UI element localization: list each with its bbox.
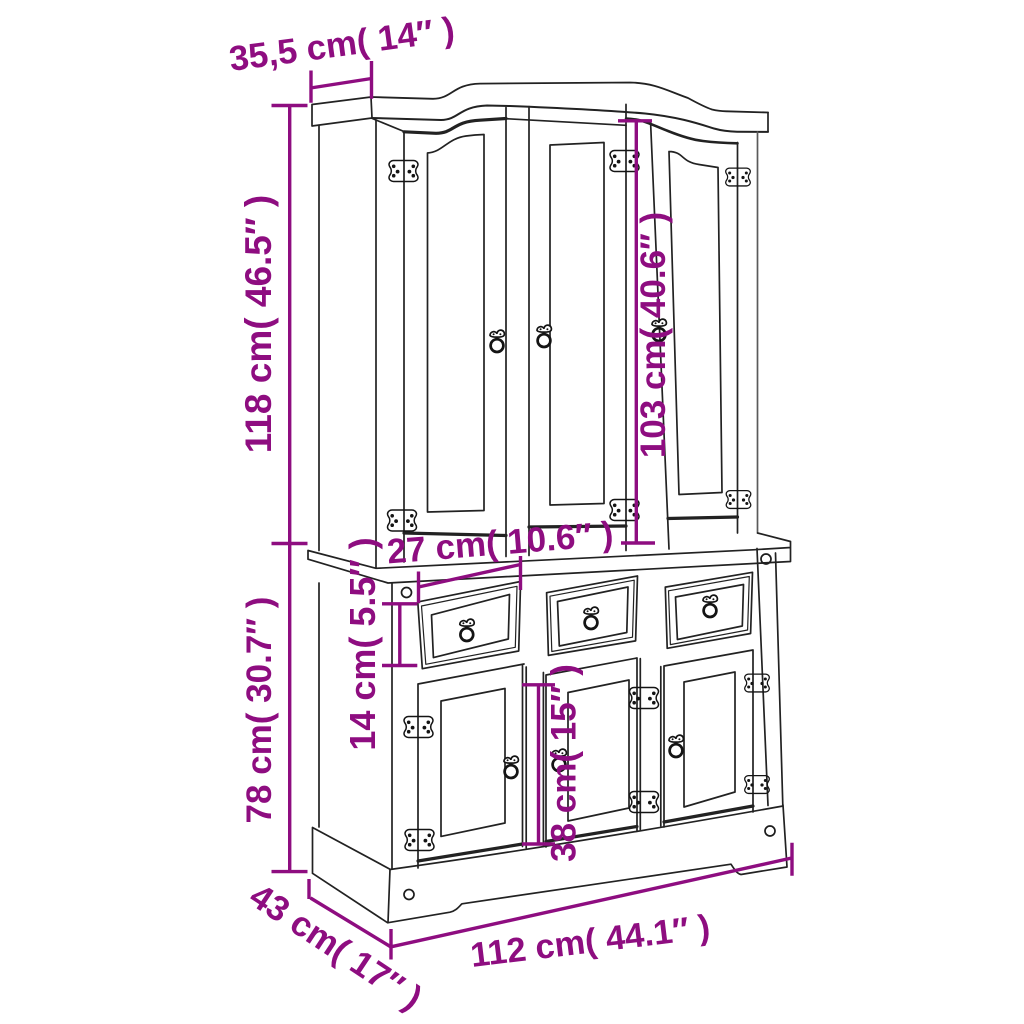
svg-text:118 cm( 46.5″ ): 118 cm( 46.5″ ): [238, 195, 279, 453]
svg-text:78 cm( 30.7″ ): 78 cm( 30.7″ ): [240, 597, 279, 824]
svg-text:38 cm( 15″ ): 38 cm( 15″ ): [545, 664, 584, 862]
svg-text:14 cm( 5.5″ ): 14 cm( 5.5″ ): [342, 537, 383, 750]
svg-text:103 cm( 40.6″ ): 103 cm( 40.6″ ): [634, 212, 673, 458]
